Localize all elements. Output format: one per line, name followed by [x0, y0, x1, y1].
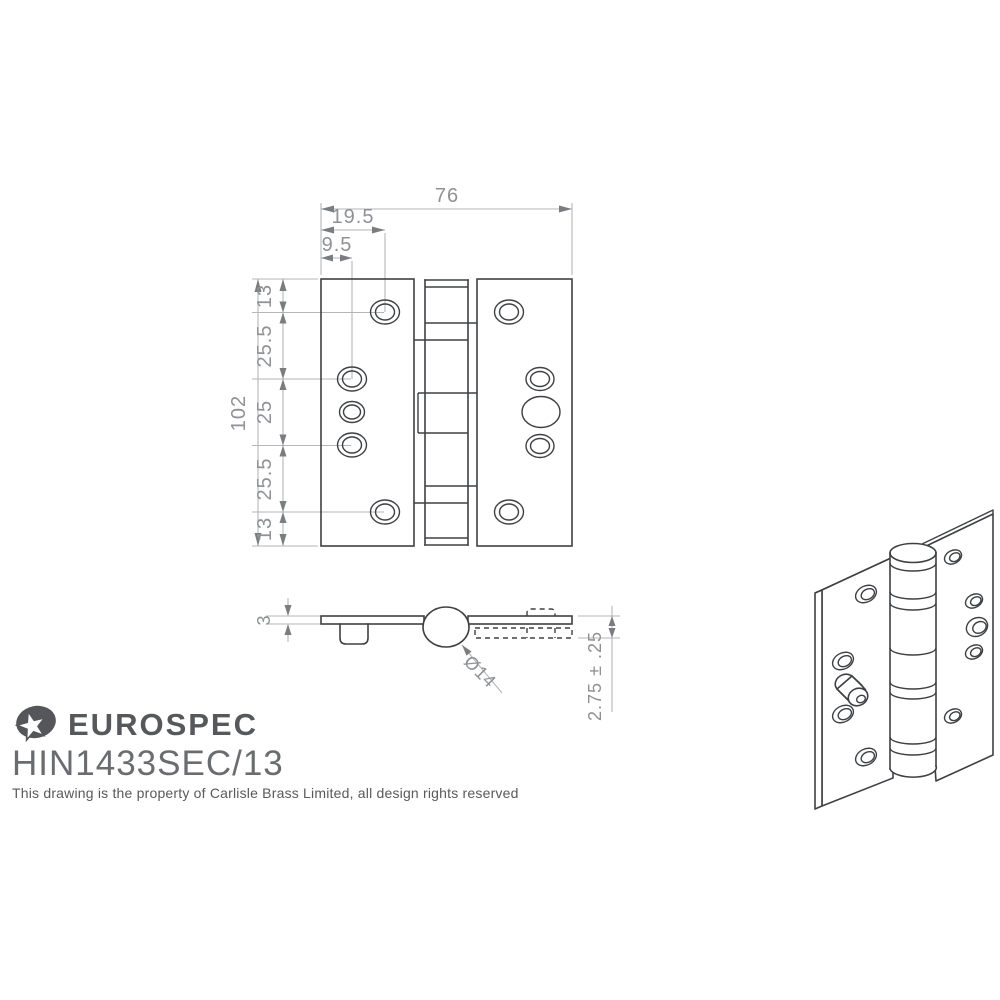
dim-label-overall-width: 76	[435, 185, 459, 207]
dim-label-chain-1: 13	[254, 284, 276, 308]
screw-hole	[526, 435, 554, 458]
screw-hole	[340, 402, 365, 423]
dim-label-chain-4: 25.5	[254, 458, 276, 501]
dim-closed-thickness: 2.75 ± .25	[585, 606, 616, 721]
iso-knuckle-barrel	[890, 544, 936, 778]
front-extension-lines	[252, 203, 572, 546]
left-leaf	[321, 279, 414, 546]
hinge-knuckle	[414, 280, 477, 545]
isometric-view	[815, 510, 993, 809]
dim-vertical-chain: 13 25.5 25 25.5 13	[254, 279, 287, 546]
dim-hole-offset-inner: 9.5	[321, 234, 352, 262]
dim-hole-offset-outer: 19.5	[321, 206, 385, 234]
drawing-sheet: 76 19.5 9.5 102	[0, 0, 1000, 1000]
section-view: 3 Ø14 2.75 ± .25	[254, 598, 620, 721]
dim-label-overall-height: 102	[228, 395, 250, 431]
dim-label-hole-offset-inner: 9.5	[322, 234, 353, 256]
front-view: 76 19.5 9.5 102	[228, 185, 572, 546]
security-stud-hole	[522, 397, 560, 428]
screw-hole	[495, 300, 524, 324]
dim-label-chain-2: 25.5	[254, 325, 276, 368]
hinge-front-body	[321, 279, 572, 546]
dim-label-leaf-thickness: 3	[254, 614, 274, 625]
dim-label-chain-3: 25	[254, 400, 276, 424]
left-leaf-holes	[338, 300, 400, 524]
dim-knuckle-diameter: Ø14	[460, 645, 502, 693]
iso-left-leaf	[815, 557, 893, 809]
product-code: HIN1433SEC/13	[12, 746, 572, 781]
copyright-note: This drawing is the property of Carlisle…	[12, 785, 572, 801]
screw-hole	[371, 500, 400, 524]
dim-leaf-thickness: 3	[254, 598, 292, 642]
dim-label-closed-thickness: 2.75 ± .25	[585, 631, 605, 721]
star-in-ellipse-icon	[12, 703, 58, 747]
dim-label-hole-offset-outer: 19.5	[332, 206, 375, 228]
right-leaf-holes	[495, 300, 561, 524]
dim-label-knuckle-diameter: Ø14	[460, 652, 500, 692]
right-leaf	[477, 279, 572, 546]
security-stud	[340, 624, 368, 644]
dim-label-chain-5: 13	[254, 517, 276, 541]
section-right-leaf	[468, 616, 572, 624]
brand-row: EUROSPEC	[12, 704, 572, 746]
title-block: EUROSPEC HIN1433SEC/13 This drawing is t…	[12, 704, 572, 801]
technical-drawing-canvas: 76 19.5 9.5 102	[0, 0, 1000, 1000]
screw-hole	[495, 500, 524, 524]
screw-hole	[526, 368, 554, 391]
section-left-leaf	[321, 616, 424, 624]
screw-hole	[338, 433, 367, 457]
brand-name: EUROSPEC	[68, 707, 258, 743]
section-knuckle-barrel	[423, 607, 469, 647]
